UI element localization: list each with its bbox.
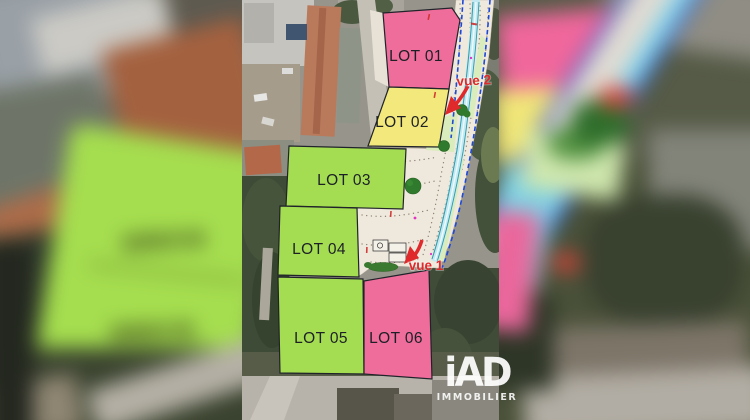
tree-highlight [407, 180, 413, 186]
listing-photo: LOT 01 LOT 02 LOT 03 LOT 04 LOT 05 [0, 0, 750, 420]
structure-outline [389, 243, 406, 252]
tree-icon [464, 111, 471, 118]
dimension-mark [366, 247, 368, 253]
lot-01-parcel: LOT 01 [383, 8, 460, 89]
blur-blob [599, 86, 633, 108]
solar-panels [286, 24, 307, 40]
blur-blob [112, 326, 129, 339]
parked-car [282, 68, 293, 74]
lot-polygon [364, 270, 432, 379]
lot-polygon [278, 277, 364, 374]
point-dot [414, 217, 417, 220]
lot-label: LOT 01 [389, 48, 443, 65]
blur-blob [0, 243, 33, 420]
tree-icon [405, 178, 421, 194]
lot-label: LOT 04 [292, 241, 346, 258]
lot-label: LOT 06 [369, 330, 423, 347]
blur-wrap [0, 0, 242, 420]
hedge-icon [368, 263, 398, 272]
point-dot [470, 57, 472, 59]
blur-blob [143, 234, 162, 248]
lot-04-parcel: LOT 04 [278, 206, 359, 277]
lot-label: LOT 03 [317, 172, 371, 189]
hedge-icon [364, 262, 372, 268]
terracotta-roof [244, 145, 282, 175]
lot-05-parcel: LOT 05 [278, 277, 364, 374]
point-dot [430, 253, 432, 255]
blurred-backdrop-left [0, 0, 242, 420]
agency-logo-wordmark: iAD [436, 352, 518, 394]
agency-logo: iAD IMMOBILIER [434, 352, 520, 403]
blur-blob [176, 323, 193, 336]
structure-outline [373, 240, 388, 251]
lot-03-parcel: LOT 03 [286, 146, 406, 209]
lot-label: LOT 05 [294, 330, 348, 347]
structure-outline [389, 253, 406, 262]
building-roof [244, 3, 274, 43]
lot-06-parcel: LOT 06 [364, 270, 432, 379]
blur-wrap [499, 0, 750, 420]
courtyard [242, 64, 300, 142]
vue1-label: vue 1 [409, 258, 444, 273]
building-roof [394, 394, 436, 420]
building-roof [337, 388, 399, 420]
tree-icon [439, 141, 450, 152]
blur-blob [132, 325, 151, 339]
blur-blob [166, 233, 180, 246]
blur-blob [155, 324, 169, 337]
blur-blob [123, 236, 140, 250]
blur-blob [551, 253, 581, 272]
lot-label: LOT 02 [375, 114, 429, 131]
shed-roof [336, 28, 362, 124]
vue2-label: vue 2 [456, 72, 491, 89]
blur-blob [186, 232, 203, 246]
blurred-backdrop-right [499, 0, 750, 420]
blur-blob [584, 195, 744, 325]
